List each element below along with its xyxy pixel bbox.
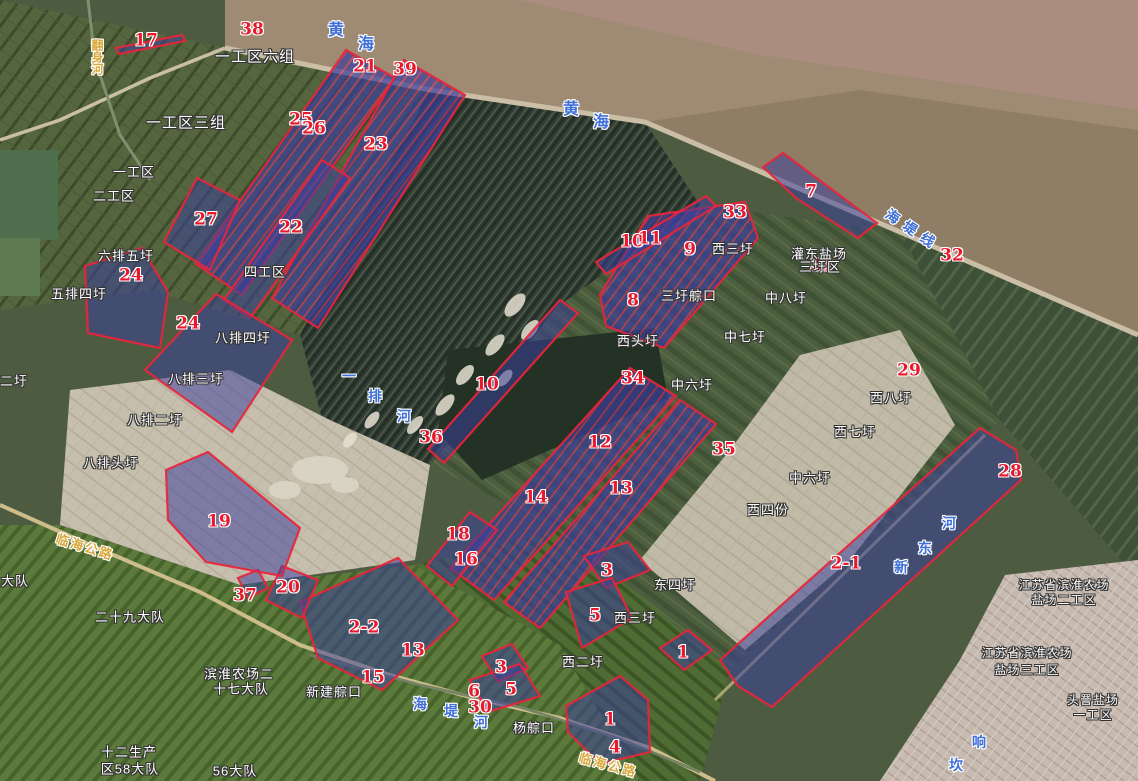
parcel-10-center[interactable] xyxy=(428,300,578,463)
parcel-2-1-28[interactable] xyxy=(720,428,1021,707)
parcel-5-6-south[interactable] xyxy=(470,664,540,712)
parcel-19[interactable] xyxy=(166,452,300,576)
parcel-24-east[interactable] xyxy=(145,294,292,432)
parcel-24-west[interactable] xyxy=(85,248,168,348)
parcel-1-4-south[interactable] xyxy=(566,676,650,764)
map-canvas[interactable]: 1738213925262327222424733101193132834291… xyxy=(0,0,1138,781)
parcel-17-line[interactable] xyxy=(116,35,185,54)
parcel-2-2-13-15[interactable] xyxy=(300,558,458,690)
parcel-overlay[interactable] xyxy=(0,0,1138,781)
parcel-1-east[interactable] xyxy=(660,630,712,670)
parcel-5-north[interactable] xyxy=(566,578,632,648)
parcel-7[interactable] xyxy=(763,153,877,238)
parcel-37[interactable] xyxy=(238,570,268,598)
